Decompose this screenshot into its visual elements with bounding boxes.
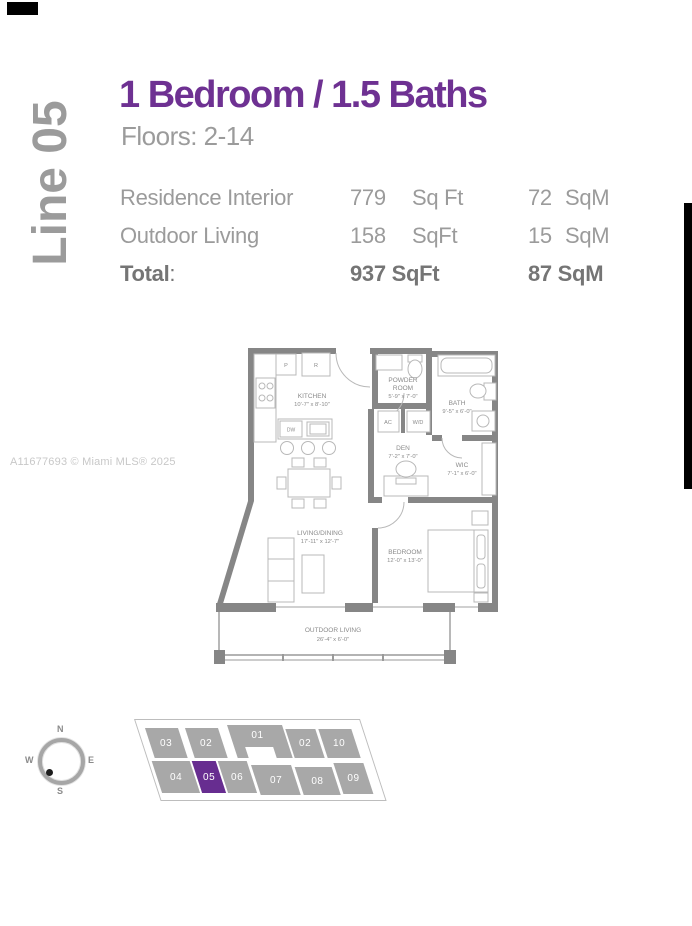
bath-dims: 9'-5" x 6'-0" bbox=[442, 409, 471, 415]
keyplan-unit: 10 bbox=[318, 729, 360, 758]
den-furniture bbox=[384, 461, 428, 496]
wic-label: WIC bbox=[456, 462, 469, 469]
keyplan-unit: 08 bbox=[295, 767, 341, 795]
powder-room-dims: 5'-9" x 7'-0" bbox=[388, 394, 417, 400]
area-sqft-unit: Sq Ft bbox=[412, 185, 463, 211]
compass-ring-icon bbox=[38, 738, 85, 785]
floorplan-svg: KITCHEN 10'-7" x 8'-10" POWDER ROOM 5'-9… bbox=[210, 345, 502, 670]
area-row-label: Outdoor Living bbox=[120, 223, 259, 249]
kitchen-dims: 10'-7" x 8'-10" bbox=[294, 402, 330, 408]
mls-watermark: A11677693 © Miami MLS® 2025 bbox=[10, 456, 176, 468]
area-sqm-unit: SqM bbox=[565, 185, 609, 211]
living-dining-label: LIVING/DINING bbox=[297, 530, 343, 537]
powder-room-label2: ROOM bbox=[393, 385, 413, 392]
total-sqft: 937 SqFt bbox=[350, 261, 439, 287]
powder-room-fixtures bbox=[376, 355, 422, 378]
keyplan-unit: 07 bbox=[251, 765, 301, 795]
den-label: DEN bbox=[396, 445, 410, 452]
area-sqft-value: 779 bbox=[350, 185, 386, 211]
bedroom-furniture bbox=[428, 511, 488, 602]
area-sqft-unit: SqFt bbox=[412, 223, 457, 249]
living-furniture bbox=[268, 538, 324, 602]
keyplan-unit: 02 bbox=[185, 728, 228, 758]
total-sqm: 87 SqM bbox=[528, 261, 603, 287]
bedroom-dims: 12'-0" x 13'-0" bbox=[387, 558, 423, 564]
floorplan-sheet: { "side_label": "Line 05", "watermark": … bbox=[0, 0, 692, 926]
keyplan: 03 02 01 02 10 04 05 06 07 08 09 bbox=[140, 725, 375, 795]
outdoor-living-dims: 26'-4" x 6'-0" bbox=[317, 637, 349, 643]
keyplan-notch bbox=[245, 747, 277, 758]
redaction-bar-top-left bbox=[7, 2, 38, 15]
area-sqm-unit: SqM bbox=[565, 223, 609, 249]
den-dims: 7'-2" x 7'-0" bbox=[388, 454, 417, 460]
washer-dryer-label: W/D bbox=[413, 420, 424, 426]
area-row-total: Total: 937 SqFt 87 SqM bbox=[0, 261, 692, 287]
compass-north: N bbox=[57, 724, 64, 734]
compass-east: E bbox=[88, 755, 94, 765]
bathroom-fixtures bbox=[438, 355, 496, 431]
wic-dims: 7'-1" x 6'-0" bbox=[447, 471, 476, 477]
compass-south: S bbox=[57, 786, 63, 796]
outdoor-living-label: OUTDOOR LIVING bbox=[305, 627, 361, 634]
floors-range: Floors: 2-14 bbox=[121, 121, 254, 152]
fridge-label: R bbox=[314, 363, 318, 369]
total-label: Total: bbox=[120, 261, 175, 287]
living-dining-dims: 17'-11" x 12'-7" bbox=[301, 539, 339, 545]
keyplan-unit: 03 bbox=[145, 728, 188, 758]
area-row-residence-interior: Residence Interior 779 Sq Ft 72 SqM bbox=[0, 185, 692, 211]
compass-west: W bbox=[25, 755, 34, 765]
dining-table bbox=[277, 458, 341, 508]
dishwasher-label: DW bbox=[287, 428, 296, 434]
bedroom-label: BEDROOM bbox=[388, 549, 422, 556]
area-sqft-value: 158 bbox=[350, 223, 386, 249]
area-sqm-value: 72 bbox=[528, 185, 552, 211]
page-title: 1 Bedroom / 1.5 Baths bbox=[119, 74, 487, 117]
bath-label: BATH bbox=[449, 400, 466, 407]
area-sqm-value: 15 bbox=[528, 223, 552, 249]
pantry-label: P bbox=[284, 363, 288, 369]
kitchen-label: KITCHEN bbox=[298, 393, 327, 400]
powder-room-label: POWDER bbox=[388, 377, 418, 384]
ac-label: AC bbox=[384, 420, 392, 426]
area-row-outdoor-living: Outdoor Living 158 SqFt 15 SqM bbox=[0, 223, 692, 249]
area-row-label: Residence Interior bbox=[120, 185, 293, 211]
floorplan: KITCHEN 10'-7" x 8'-10" POWDER ROOM 5'-9… bbox=[210, 345, 502, 670]
compass-location-dot-icon bbox=[46, 769, 53, 776]
